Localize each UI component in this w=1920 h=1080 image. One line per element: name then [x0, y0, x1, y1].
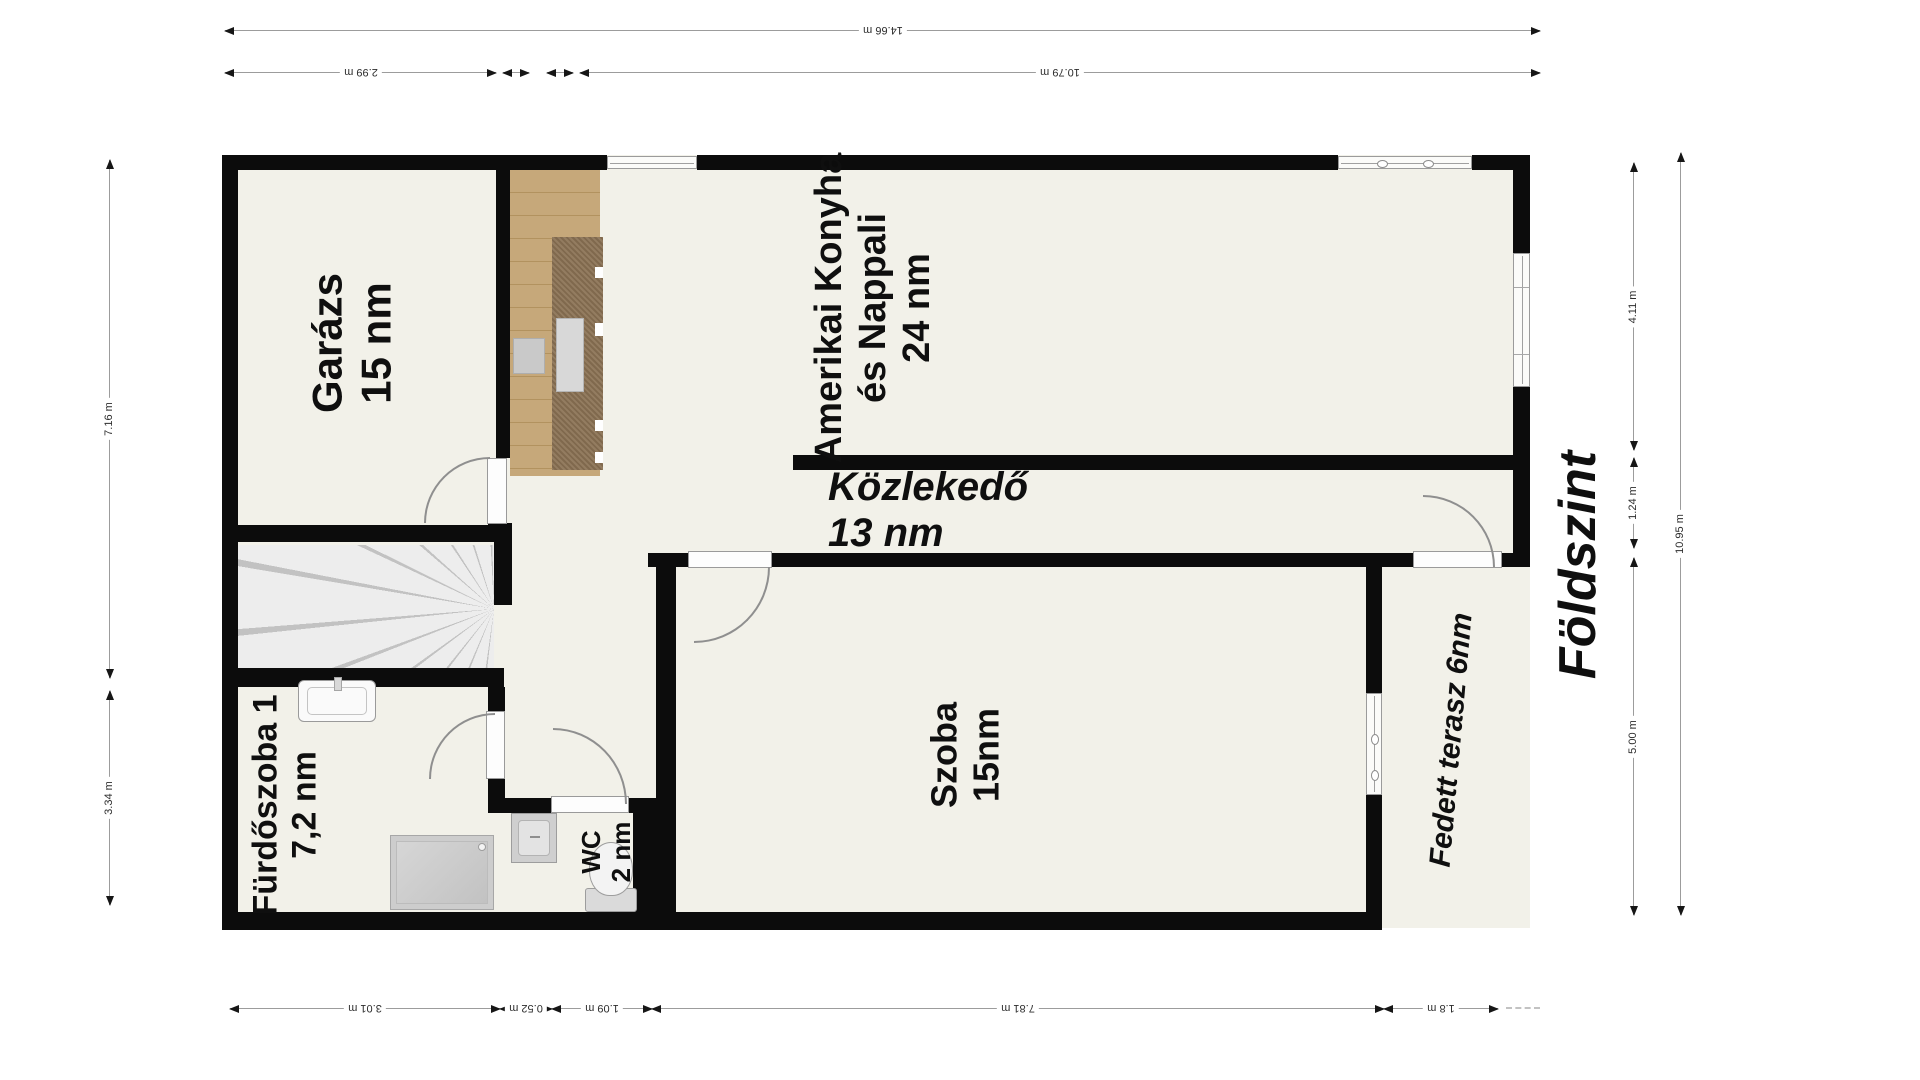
room-area: 2 nm	[606, 822, 636, 883]
wall	[494, 542, 512, 605]
kitchen-appliance	[513, 338, 545, 374]
room-name: Közlekedő	[828, 464, 1028, 510]
wall	[488, 687, 505, 713]
window	[1513, 253, 1530, 387]
dimension-label: 3.01 m	[344, 1002, 386, 1014]
dimension-line: 1.09 m	[552, 1008, 652, 1009]
dimension-line: 5.00 m	[1633, 558, 1634, 915]
dimension-label: 1.09 m	[581, 1002, 623, 1014]
window	[1366, 693, 1382, 795]
dimension-line: 3.01 m	[230, 1008, 500, 1009]
dimension-dashes	[1506, 1007, 1540, 1009]
wall	[1366, 553, 1382, 693]
window	[607, 156, 697, 169]
room-label-living: Amerikai Konyha és Nappali 24 nm	[807, 153, 939, 463]
wall	[648, 553, 690, 567]
dimension-label: 7.81 m	[997, 1002, 1039, 1014]
wall	[1500, 553, 1530, 567]
floor-title: Földszint	[1548, 451, 1608, 679]
wall	[222, 155, 238, 930]
dimension-line: 3.34 m	[109, 691, 110, 905]
staircase	[238, 545, 494, 668]
dimension-line: 1.8 m	[1384, 1008, 1498, 1009]
room-label-garage: Garázs 15 nm	[303, 273, 400, 413]
wall	[656, 553, 676, 912]
cabinet-divider	[595, 420, 603, 431]
dimension-label: 1.24 m	[1627, 482, 1639, 524]
dimension-label: 7.16 m	[103, 398, 115, 440]
room-name: Garázs	[303, 273, 352, 413]
dimension-label: 3.34 m	[103, 777, 115, 819]
room-name: WC	[576, 822, 606, 883]
dimension-line	[503, 72, 529, 73]
wall	[222, 155, 607, 170]
room-label-bathroom: Fürdőszoba 1 7,2 nm	[247, 694, 326, 915]
door-leaf	[487, 458, 507, 524]
wall	[222, 525, 512, 542]
dimension-line: 0.52 m	[500, 1008, 552, 1009]
dimension-label: 5.00 m	[1627, 716, 1639, 758]
room-area: 13 nm	[828, 510, 1028, 556]
room-area: 15 nm	[352, 273, 401, 413]
room-name: Szoba	[923, 702, 965, 808]
sink-icon	[511, 813, 557, 863]
room-name: Fürdőszoba 1	[247, 694, 286, 915]
room-label-bedroom: Szoba 15nm	[923, 702, 1007, 808]
dimension-label: 14.66 m	[859, 24, 907, 36]
dimension-label: 10.79 m	[1036, 66, 1084, 78]
kitchen-sink	[556, 318, 584, 392]
dimension-label: 10.95 m	[1674, 510, 1686, 558]
wall	[1513, 168, 1530, 253]
dimension-line: 2.99 m	[225, 72, 496, 73]
wall	[488, 798, 553, 813]
room-label-hall: Közlekedő 13 nm	[828, 464, 1028, 557]
cabinet-divider	[595, 267, 603, 278]
dimension-line	[547, 72, 573, 73]
dimension-label: 2.99 m	[340, 66, 382, 78]
dimension-line: 7.81 m	[652, 1008, 1384, 1009]
dimension-line: 4.11 m	[1633, 163, 1634, 450]
wall	[1513, 387, 1530, 567]
window	[1338, 156, 1472, 169]
dimension-label: 4.11 m	[1627, 286, 1639, 327]
wall	[697, 155, 1338, 170]
floorplan-page: Garázs 15 nm Amerikai Konyha és Nappali …	[0, 0, 1920, 1080]
dimension-line: 10.79 m	[580, 72, 1540, 73]
room-area: 7,2 nm	[286, 694, 325, 915]
wall	[222, 912, 1382, 930]
dimension-line: 7.16 m	[109, 160, 110, 678]
room-label-wc: WC 2 nm	[576, 822, 636, 883]
dimension-label: 0.52 m	[505, 1002, 547, 1014]
shower-icon	[390, 835, 494, 910]
cabinet-divider	[595, 452, 603, 463]
cabinet-divider	[595, 323, 603, 336]
wall	[1366, 795, 1382, 912]
dimension-line: 1.24 m	[1633, 458, 1634, 548]
room-area: 24 nm	[895, 153, 939, 463]
door-leaf	[688, 551, 772, 568]
room-name: Amerikai Konyha	[807, 153, 851, 463]
dimension-label: 1.8 m	[1423, 1002, 1459, 1014]
room-area: 15nm	[965, 702, 1007, 808]
room-name: és Nappali	[851, 153, 895, 463]
dimension-line: 14.66 m	[225, 30, 1540, 31]
dimension-line: 10.95 m	[1680, 153, 1681, 915]
